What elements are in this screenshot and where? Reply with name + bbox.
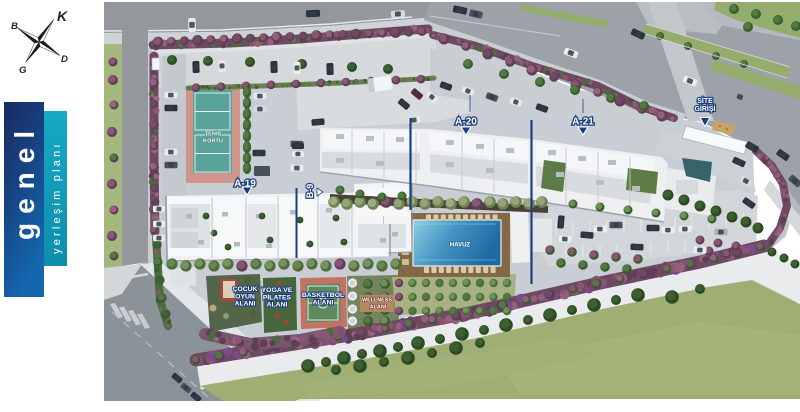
svg-text:ALANI: ALANI (370, 305, 387, 311)
svg-text:ALANI: ALANI (313, 299, 334, 306)
svg-text:D: D (61, 54, 68, 65)
svg-text:BASKETBOL: BASKETBOL (302, 292, 344, 299)
svg-text:OYUN: OYUN (235, 293, 255, 300)
svg-text:K: K (57, 8, 68, 24)
svg-text:YOGA VE: YOGA VE (262, 287, 293, 294)
svg-text:KORTU: KORTU (203, 139, 223, 145)
svg-text:genel: genel (9, 122, 40, 240)
svg-text:TENİS: TENİS (205, 131, 222, 138)
svg-text:GİRİŞİ: GİRİŞİ (694, 105, 715, 113)
svg-text:B-9: B-9 (305, 184, 315, 199)
svg-text:HAVUZ: HAVUZ (450, 243, 471, 249)
svg-text:SİTE: SİTE (697, 97, 713, 105)
svg-text:WELLNESS: WELLNESS (362, 298, 392, 304)
svg-text:ÇOCUK: ÇOCUK (233, 286, 258, 293)
svg-text:PİLATES: PİLATES (263, 293, 292, 301)
svg-text:A-20: A-20 (455, 117, 477, 128)
svg-text:ALANI: ALANI (267, 302, 288, 309)
svg-text:G: G (19, 65, 27, 76)
svg-text:ALANI: ALANI (235, 301, 256, 308)
svg-text:B: B (11, 21, 18, 32)
svg-text:A-21: A-21 (572, 117, 594, 128)
svg-text:yerleşim planı: yerleşim planı (51, 141, 63, 254)
